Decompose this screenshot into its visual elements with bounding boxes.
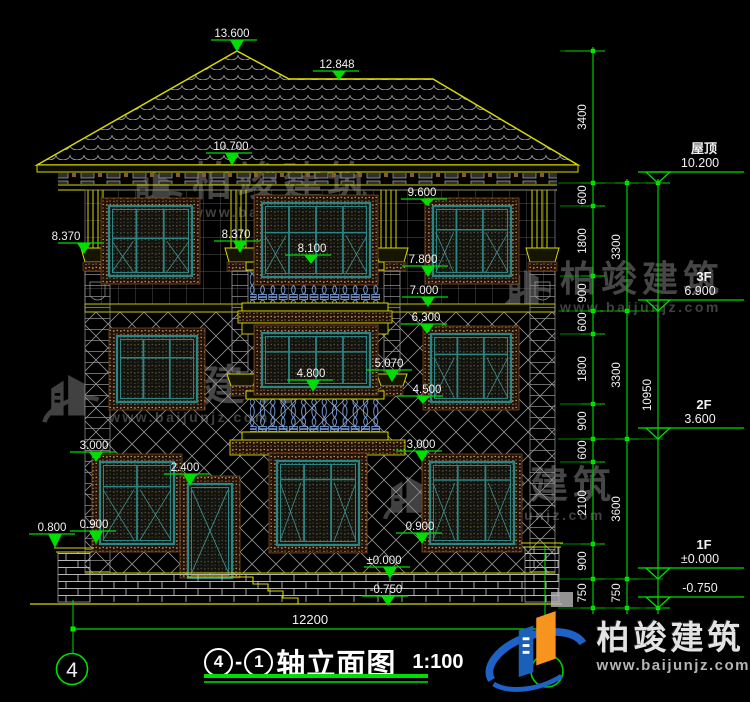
cornice (37, 165, 578, 190)
cad-viewport: 柏竣建筑 www.baijunjz.com 柏竣建筑 www.baijunjz.… (0, 0, 750, 702)
dimension-label: 600 (577, 440, 589, 459)
dimension-label: 900 (577, 283, 589, 302)
elevation-marker-label: 6.300 (412, 312, 441, 324)
dimension-label: 600 (577, 312, 589, 331)
elevation-marker-label: 0.900 (406, 521, 435, 533)
window (422, 454, 522, 552)
dimension-label: 10950 (642, 379, 654, 411)
floor-elevation: 6.900 (684, 284, 715, 298)
elevation-marker-label: 0.800 (38, 522, 67, 534)
elevation-marker-label: 4.800 (297, 368, 326, 380)
window (101, 198, 200, 284)
elevation-marker-label: 13.600 (214, 28, 249, 40)
dimension-label: 3400 (577, 104, 589, 130)
floor-name: 3F (696, 269, 711, 284)
elevation-marker: 0.800 (29, 522, 75, 548)
brand-logo: 柏竣建筑 www.baijunjz.com (478, 597, 750, 697)
floor-elevation: 10.200 (681, 156, 719, 170)
window (269, 453, 367, 553)
balcony-2f (230, 391, 405, 455)
window (254, 195, 378, 285)
floor-elevation: 3.600 (684, 412, 715, 426)
elevation-marker-label: 8.370 (222, 229, 251, 241)
floor-name: 屋顶 (691, 141, 717, 156)
window (425, 198, 519, 284)
floor-elevation: ±0.000 (681, 552, 719, 566)
title-scale: 1:100 (412, 651, 463, 674)
logo-mark (478, 597, 593, 697)
dimension-chain-total: 10950 (642, 179, 670, 614)
elevation-marker-label: 2.400 (171, 462, 200, 474)
overall-width-label: 12200 (292, 612, 328, 627)
balustrade-2f (250, 399, 380, 432)
elevation-marker-label: 8.100 (298, 243, 327, 255)
dimension-chain-segments: 3400600180090060018009006002100900750 (577, 47, 605, 614)
dimension-label: 2100 (577, 490, 589, 516)
floor-level: 1F±0.000 (638, 537, 744, 579)
elevation-marker-label: 5.070 (375, 358, 404, 370)
overall-width-dimension: 12200 (71, 612, 548, 632)
window (109, 328, 205, 410)
elevation-marker-label: 3.000 (407, 439, 436, 451)
dimension-label: 900 (577, 411, 589, 430)
floor-name: 1F (696, 537, 711, 552)
entry-door (180, 476, 240, 578)
roof (37, 51, 578, 165)
elevation-marker-label: 7.000 (410, 285, 439, 297)
elevation-marker-label: ±0.000 (366, 555, 401, 567)
dimension-label: 3600 (611, 496, 623, 522)
axis-bubble-left-label: 4 (66, 659, 78, 682)
floor-name: 2F (696, 397, 711, 412)
logo-name: 柏竣建筑 (597, 621, 750, 654)
title-underline-thick (204, 674, 428, 678)
window (92, 454, 182, 552)
dimension-chain-floors: 330033003600750 (611, 179, 639, 614)
gate-pier-left (54, 548, 94, 602)
floor-level: 3F6.900 (638, 269, 744, 311)
axis-ref-end: 1 (244, 648, 273, 677)
dimension-label: 1800 (577, 228, 589, 254)
elevation-marker: 13.600 (211, 28, 257, 52)
house (30, 51, 578, 607)
elevation-marker-label: 10.700 (213, 141, 248, 153)
dimension-label: 1800 (577, 356, 589, 382)
dimension-label: 600 (577, 185, 589, 204)
elevation-marker: -0.750 (362, 584, 408, 606)
axis-ref-start: 4 (204, 648, 233, 677)
axis-ref-separator: - (235, 649, 242, 675)
elevation-marker-label: 4.500 (413, 384, 442, 396)
elevation-marker-label: 3.000 (80, 440, 109, 452)
logo-url: www.baijunjz.com (597, 657, 750, 674)
dimension-label: 3300 (611, 362, 623, 388)
elevation-marker-label: 0.900 (80, 519, 109, 531)
elevation-marker-label: 8.370 (52, 231, 81, 243)
elevation-marker-label: 9.600 (408, 187, 437, 199)
elevation-marker-label: -0.750 (370, 584, 403, 596)
elevation-marker-label: 7.800 (409, 254, 438, 266)
dimension-label: 900 (577, 551, 589, 570)
window (423, 326, 519, 410)
elevation-marker: 12.848 (313, 59, 359, 80)
title-underline-thin (204, 681, 428, 683)
floor-level: 屋顶10.200 (638, 141, 744, 183)
floor-elevation: -0.750 (682, 581, 717, 595)
elevation-marker-label: 12.848 (319, 59, 354, 71)
dimension-label: 3300 (611, 234, 623, 260)
